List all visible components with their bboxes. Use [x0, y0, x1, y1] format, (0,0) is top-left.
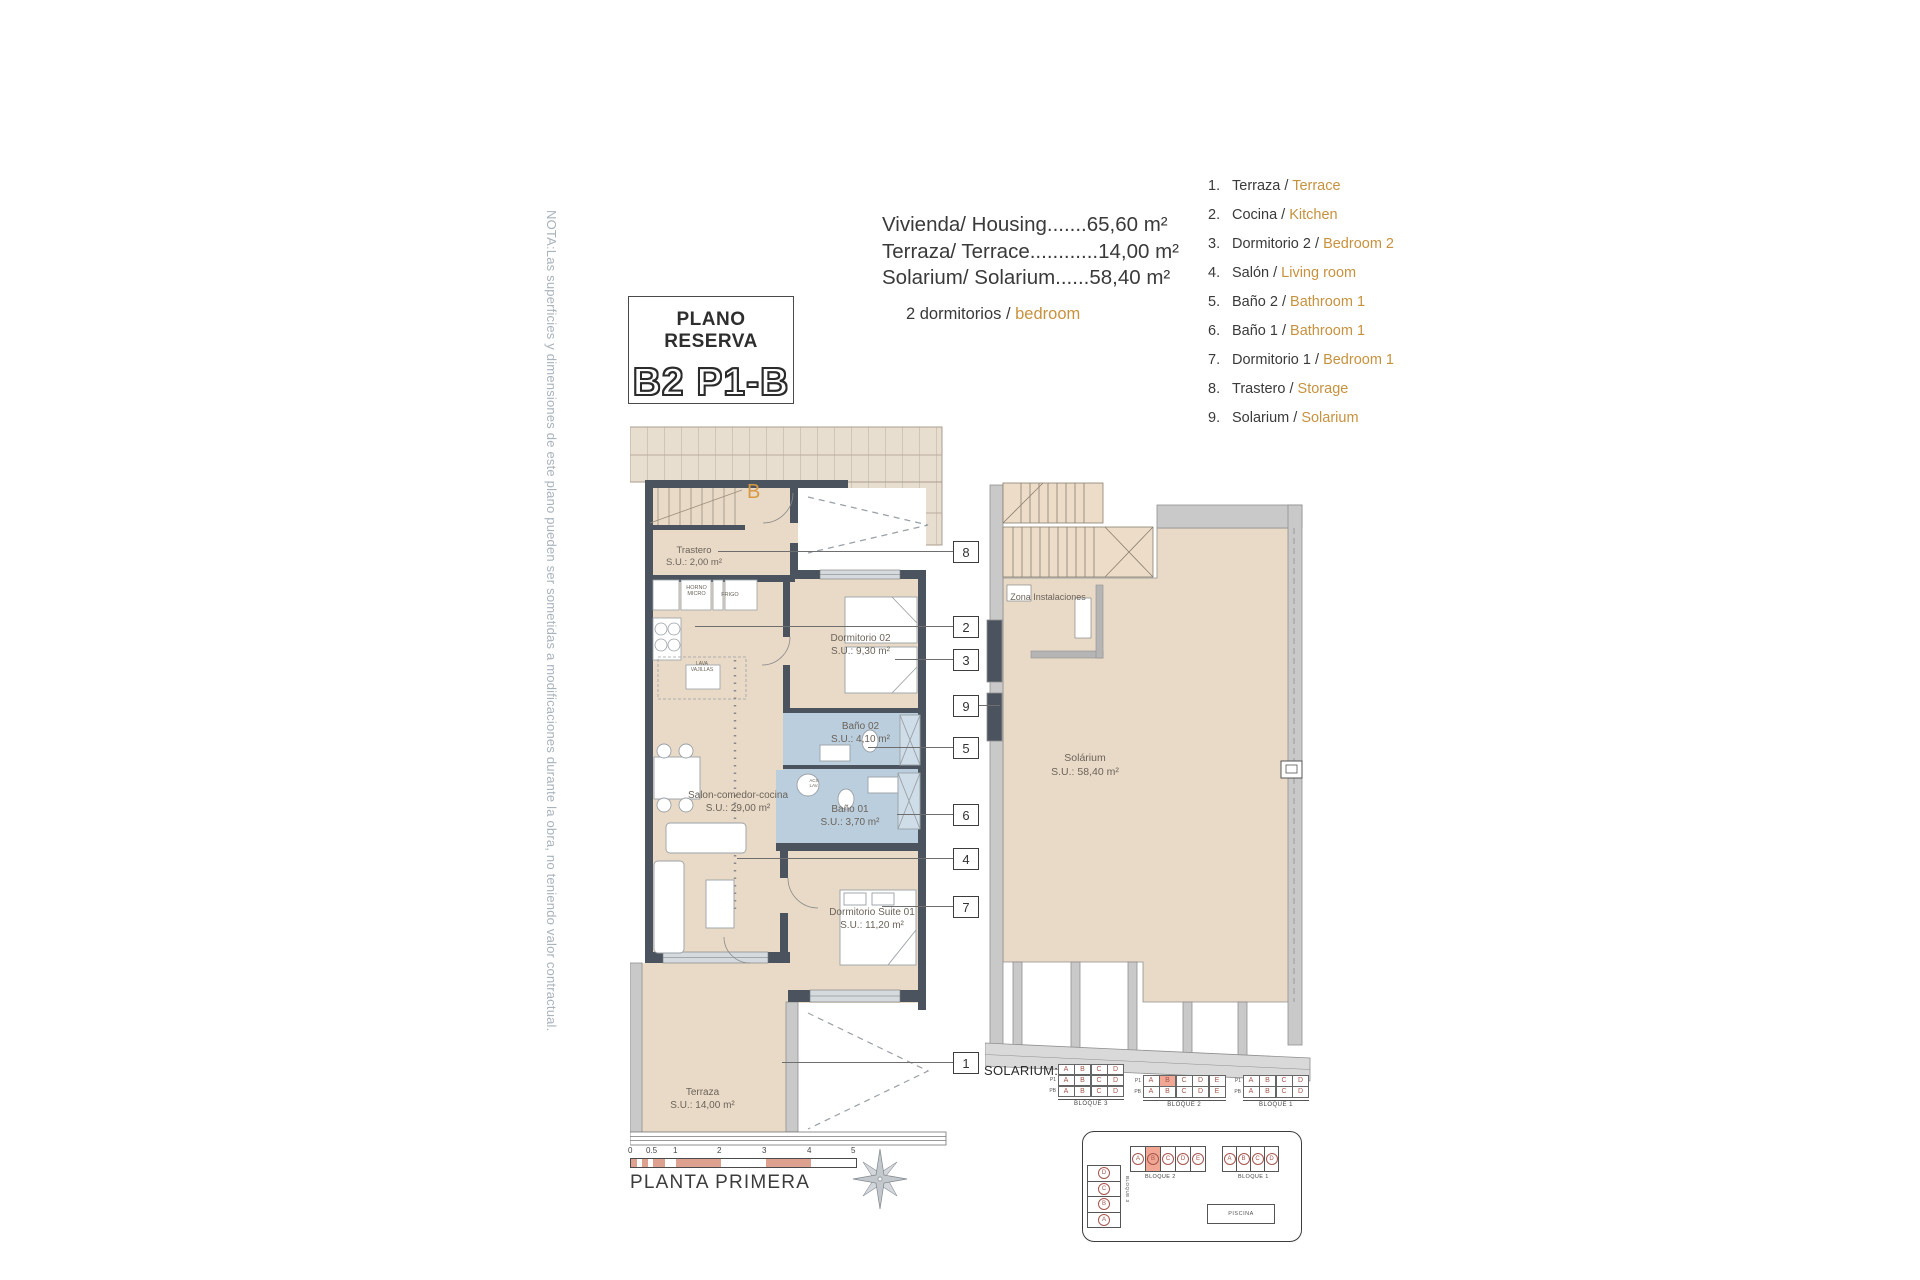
site-bloque3-caption: BLOQUE 3 — [1125, 1176, 1130, 1203]
site-bloque2-strip: A B C D E — [1131, 1146, 1206, 1172]
bloque1-table: P1 A B C D PB A B C D BLOQUE 1 — [1243, 1076, 1309, 1108]
label-frigo: FRIGO — [716, 592, 744, 598]
solarium-area: Solarium/ Solarium......58,40 m² — [882, 265, 1179, 292]
callout-6: 6 — [953, 804, 979, 826]
legend-item: 6.Baño 1 / Bathroom 1 — [1208, 323, 1394, 339]
title-box: PLANO RESERVA B2 P1-B — [628, 296, 794, 404]
callout-2: 2 — [953, 616, 979, 638]
compass-rose-icon — [850, 1146, 910, 1212]
legend-item: 1.Terraza / Terrace — [1208, 178, 1394, 194]
room-label-suite: Dormitorio Suite 01S.U.: 11,20 m² — [812, 906, 932, 932]
callout-leader — [897, 814, 953, 815]
solarium-stairs — [1003, 483, 1153, 577]
site-piscina: PISCINA — [1207, 1204, 1275, 1224]
callout-leader — [977, 705, 1000, 706]
legend-item: 7.Dormitorio 1 / Bedroom 1 — [1208, 352, 1394, 368]
callout-leader — [895, 659, 953, 660]
room-legend: 1.Terraza / Terrace 2.Cocina / Kitchen 3… — [1208, 178, 1394, 439]
solarium-door — [1281, 761, 1302, 778]
room-label-salon: Salon-comedor-cocinaS.U.: 29,00 m² — [682, 789, 794, 815]
bloque3-table: A B C D P1 A B C D PB A B C D BLOQUE 3 — [1058, 1064, 1124, 1107]
site-bloque1-caption: BLOQUE 1 — [1238, 1174, 1269, 1180]
room-label-bano1: Baño 01S.U.: 3,70 m² — [800, 803, 900, 829]
label-zona-instalaciones: Zona Instalaciones — [1008, 592, 1088, 602]
site-bloque3-column: D C B A — [1087, 1165, 1121, 1228]
label-lava-vajillas: LAVA VAJILLAS — [688, 662, 716, 674]
terrace-area: Terraza/ Terrace............14,00 m² — [882, 239, 1179, 266]
housing-area: Vivienda/ Housing.......65,60 m² — [882, 212, 1179, 239]
bloque2-caption: BLOQUE 2 — [1143, 1100, 1226, 1108]
room-label-dormitorio2: Dormitorio 02S.U.: 9,30 m² — [808, 632, 913, 658]
bloque1-caption: BLOQUE 1 — [1243, 1100, 1309, 1108]
unit-letter: B — [747, 481, 760, 504]
site-key-plan: A B C D E BLOQUE 2 A B C D BLOQUE 1 D C … — [1082, 1131, 1302, 1242]
scale-bar-strip — [630, 1158, 857, 1168]
room-label-trastero: TrasteroS.U.: 2,00 m² — [648, 545, 740, 570]
legend-item: 8.Trastero / Storage — [1208, 381, 1394, 397]
callout-leader — [882, 906, 953, 907]
callout-4: 4 — [953, 848, 979, 870]
callout-9: 9 — [953, 695, 979, 717]
callout-leader — [695, 626, 953, 627]
disclaimer-note: NOTA:Las superficies y dimensiones de es… — [544, 210, 559, 1130]
label-acs-lav: ACS LAV. — [805, 778, 823, 788]
bedrooms-line: 2 dormitorios / bedroom — [906, 305, 1080, 324]
room-label-solarium: SoláriumS.U.: 58,40 m² — [1035, 752, 1135, 779]
unit-code: B2 P1-B — [629, 361, 793, 405]
plan-title: PLANTA PRIMERA — [630, 1172, 810, 1194]
bloque2-table: P1 A B C D E PB A B C D E BLOQUE 2 — [1143, 1076, 1226, 1108]
solarium-tables-label: SOLARIUM: — [984, 1063, 1058, 1078]
plan-reserva-title: PLANO RESERVA — [629, 309, 793, 353]
callout-1: 1 — [953, 1052, 979, 1074]
callout-5: 5 — [953, 737, 979, 759]
area-measurements: Vivienda/ Housing.......65,60 m² Terraza… — [882, 212, 1179, 292]
floorplan-page: NOTA:Las superficies y dimensiones de es… — [0, 0, 1920, 1280]
callout-leader — [868, 747, 953, 748]
legend-item: 2.Cocina / Kitchen — [1208, 207, 1394, 223]
legend-item: 5.Baño 2 / Bathroom 1 — [1208, 294, 1394, 310]
site-bloque1-strip: A B C D — [1223, 1146, 1279, 1172]
callout-7: 7 — [953, 896, 979, 918]
callout-leader — [737, 858, 953, 859]
bloque3-caption: BLOQUE 3 — [1058, 1099, 1124, 1107]
legend-item: 3.Dormitorio 2 / Bedroom 2 — [1208, 236, 1394, 252]
callout-leader — [718, 551, 953, 552]
callout-leader — [782, 1062, 953, 1063]
room-label-bano2: Baño 02S.U.: 4,10 m² — [808, 720, 913, 746]
site-bloque2-caption: BLOQUE 2 — [1145, 1174, 1176, 1180]
callout-3: 3 — [953, 649, 979, 671]
legend-item: 9.Solarium / Solarium — [1208, 410, 1394, 426]
legend-item: 4.Salón / Living room — [1208, 265, 1394, 281]
callout-8: 8 — [953, 541, 979, 563]
solarium-plan-drawing — [985, 465, 1315, 1105]
room-label-terraza: TerrazaS.U.: 14,00 m² — [655, 1086, 750, 1112]
label-horno-micro: HORNO MICRO — [683, 585, 710, 598]
